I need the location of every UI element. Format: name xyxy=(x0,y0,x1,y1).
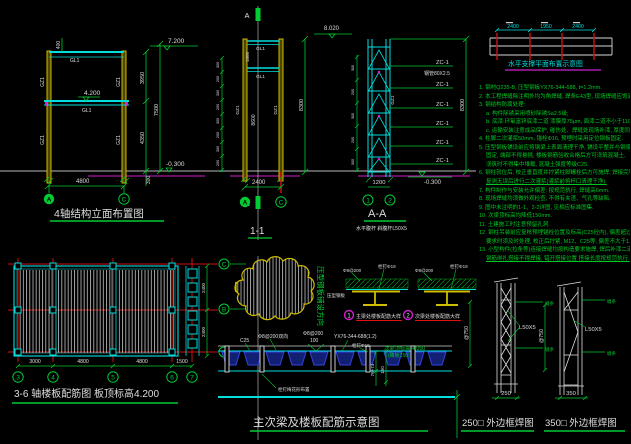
zc-label: ZC-1 xyxy=(436,82,449,88)
concrete-label: C25 xyxy=(240,338,249,344)
dim-3950: 3950 xyxy=(140,72,146,84)
mesh-label: Φ8@200双向 xyxy=(258,333,288,340)
axis-bubble-c-label: C xyxy=(122,197,127,204)
composite-deck-section: C25 Φ8@200双向 Φ8@200 100 YX76-344-688(1.2… xyxy=(218,331,455,397)
tick-dim: 200 xyxy=(216,76,220,82)
tick-dim: 200 xyxy=(216,132,220,138)
negative-rebar-label: Φ8@200 xyxy=(303,331,323,337)
tick-dim: 200 xyxy=(216,160,220,166)
row-bubble-b-label: B xyxy=(222,307,226,314)
note-line: 浇筑时不得集中堆载, 混凝土强度等级C25. xyxy=(479,161,630,170)
elevation-axis4: GL1 GL1 GZ1 GZ1 GZ1 GZ1 4.200 3950 4350 … xyxy=(40,38,198,221)
column-label: GZ1 xyxy=(273,105,279,115)
zc-label: ZC-1 xyxy=(436,102,449,108)
axis-bubble-1-label: 1 xyxy=(366,198,370,205)
detail-250-title: 250□ 外边框焊图 xyxy=(462,417,534,429)
axis-bubble-label: 4 xyxy=(51,375,55,382)
tick-dim: 300 xyxy=(351,65,355,71)
dim-span2: 1950 xyxy=(540,24,552,30)
note-line: 9. 图中未注明的1-1、2-2详图, 见相应标准图集. xyxy=(479,204,630,213)
width-dim-250: 250 xyxy=(501,391,511,397)
tick-dim: 200 xyxy=(216,104,220,110)
detail-350-title: 350□ 外边框焊图 xyxy=(545,417,617,429)
column-right xyxy=(122,51,126,183)
detail-secondary-beam: Φ8@200 栓钉Φ19 2 次梁处楼板配筋大样 xyxy=(404,263,477,321)
zc-label: ZC-1 xyxy=(436,60,449,66)
angle-size-label: L50X5 xyxy=(585,327,602,333)
beam-label: GL1 xyxy=(82,108,92,114)
dim-bay2: 4800 xyxy=(77,359,89,365)
angle-size-label: L50X5 xyxy=(519,325,536,331)
stud-label: 栓钉Φ19 xyxy=(378,263,396,270)
note-line: 要求时须及时处理, 校正后拧紧, M12、C25等, 偏差不大于1.0mm. xyxy=(479,238,630,247)
column-label: GZ1 xyxy=(40,77,46,87)
beam-label: GL1 xyxy=(70,58,80,64)
tick-dim: 300 xyxy=(351,113,355,119)
level-m0300: -0.300 xyxy=(424,180,442,186)
section-a-a: 300 200 300 200 300 GZ1 ZC-1 ZC-1 ZC-1 xyxy=(351,36,469,232)
detail-2-title: 次梁处楼板配筋大样 xyxy=(415,313,460,320)
deck-section-area: C B A 压型钢板铺设方向 Φ8@200 栓钉Φ19 压型钢板 1 主梁处楼板… xyxy=(218,256,476,440)
rebar-label: Φ8@200 xyxy=(415,268,434,273)
column-label: GZ1 xyxy=(116,77,122,87)
axis-bubble-2-label: 2 xyxy=(388,198,392,205)
note-line: c. 运输安装注意成品保护, 碰伤处、焊缝处现场补漆, 厚度同上; xyxy=(479,127,630,136)
detail-1-title: 主梁处楼板配筋大样 xyxy=(356,313,401,320)
beam-label: GL1 xyxy=(256,74,265,80)
note-line: 3. 钢结构防腐处理: xyxy=(479,101,630,110)
column-label: GZ1 xyxy=(116,135,122,145)
deck-direction-cloud xyxy=(235,257,314,320)
column-label: GZ1 xyxy=(235,105,241,115)
dim-7500: 7500 xyxy=(154,104,160,116)
section-title: A-A xyxy=(368,208,387,220)
beam-label: GL1 xyxy=(256,46,265,52)
deck-section-title: 主次梁及楼板配筋示意图 xyxy=(253,415,380,429)
dim-400: 400 xyxy=(56,41,62,50)
dim-8600: 8600 xyxy=(251,114,257,125)
tick-dim: 300 xyxy=(351,159,355,165)
tick-dim: 200 xyxy=(351,137,355,143)
stud-label: 栓钉Φ19 xyxy=(352,342,370,349)
section-marker-top: A xyxy=(244,11,249,20)
axis-bubble-label: 7 xyxy=(190,375,194,382)
note-line: 固定, 端部不得悬挑, 楼板钢筋验收合格后方可浇筑混凝土, xyxy=(479,152,630,161)
dim-deck-depth: 76+74 xyxy=(370,363,375,376)
dim-right1: 2400 xyxy=(201,282,206,293)
level-4200: 4.200 xyxy=(84,90,101,97)
bracing-plan-title: 水平支撑平面布置示意图 xyxy=(508,59,583,68)
pitch-dim: @750 xyxy=(539,329,545,343)
dim-4350: 4350 xyxy=(140,132,146,144)
axis-bubble-a-label: A xyxy=(47,197,52,204)
section-subtitle: 水平腹杆 斜腹杆L50X5 xyxy=(356,225,407,232)
zc-label: ZC-1 xyxy=(436,140,449,146)
note-line: 钢筋绑扎搭接不得焊接, 错开搭接位置 搭接长度按规范执行. xyxy=(479,255,630,264)
note-line: 12. 钢柱吊装前应复核预埋锚栓位置及标高(C25砼内), 偏差超过规范 xyxy=(479,229,630,238)
column-label: GZ1 xyxy=(390,95,396,105)
lacing-tag: 缀条 xyxy=(545,346,554,353)
row-bubble-c-label: C xyxy=(222,262,227,269)
stud-layout-note: 栓钉梅花形布置 xyxy=(278,386,310,393)
note-line: 13. 小型构件(拉条等)连接焊缝均按构造要求施焊, 焊后补漆二道, xyxy=(479,246,630,255)
dim-bay3: 4800 xyxy=(136,359,148,365)
deck-label: 压型钢板 xyxy=(327,292,345,299)
note-line: 10. 次梁顶标高均降低150mm. xyxy=(479,212,630,221)
note-line: 复测无误后进行二次灌浆(灌浆前将杯口清理干净). xyxy=(479,178,630,187)
dim-8300: 8300 xyxy=(460,99,466,111)
cad-drawing-canvas[interactable]: GL1 GL1 GZ1 GZ1 GZ1 GZ1 4.200 3950 4350 … xyxy=(0,0,631,444)
dim-right2: 2400 xyxy=(201,326,206,337)
dim-8300: 8300 xyxy=(299,99,305,111)
slab-plan-title: 3-6 轴楼板配筋图 板顶标高4.200 xyxy=(14,387,159,400)
detail-main-beam: Φ8@200 栓钉Φ19 压型钢板 1 主梁处楼板配筋大样 xyxy=(327,263,408,321)
pipe-label: 钢管80X2.5 xyxy=(424,70,450,77)
note-line: 8. 现场焊缝均须做外观检查, 不得有夹渣、气孔等缺陷. xyxy=(479,195,630,204)
lacing-tag: 缀条 xyxy=(607,350,616,357)
tick-dim: 300 xyxy=(216,62,220,68)
beam-top-level: 次梁顶标高 4.050 xyxy=(384,344,425,352)
dim-span3: 2400 xyxy=(572,24,584,30)
note-line: a. 构件除锈采用喷砂除锈Sa2.5级; xyxy=(479,110,630,119)
stud-label: 栓钉Φ19 xyxy=(450,263,468,270)
zc-label: ZC-1 xyxy=(436,121,449,127)
dim-4800: 4800 xyxy=(76,179,90,185)
note-line: 2. 本工程焊缝除注明外均为角焊缝, 焊条E43型, 现场焊缝应饱满. xyxy=(479,93,630,102)
dim-2400: 2400 xyxy=(252,180,266,186)
level-7200: 7.200 xyxy=(168,38,185,45)
elevation-title: 4轴结构立面布置图 xyxy=(54,207,144,220)
tick-dim: 300 xyxy=(216,90,220,96)
dim-slab-total: 150 xyxy=(380,366,385,374)
note-line: 7. 构件制作与安装允许偏差: 按规范执行, 焊缝高6mm. xyxy=(479,187,630,196)
section-title: 1-1 xyxy=(250,226,265,237)
frame-detail-250: 缀条 缀条 L50X5 @750 250 250□ 外边框焊图 xyxy=(461,278,554,431)
zc-label: ZC-1 xyxy=(436,158,449,164)
deck-sheet-label: YX76-344-688(1.2) xyxy=(334,334,377,340)
general-notes: 1. 钢材Q235-B, 压型钢板YX76-344-688, t=1.2mm.2… xyxy=(479,84,630,263)
lacing-tag: 缀条 xyxy=(607,298,616,305)
level-8020: 8.020 xyxy=(324,26,340,32)
zc-leaders xyxy=(390,66,453,164)
dim-300: 300 xyxy=(146,176,152,185)
tick-dim: 300 xyxy=(216,118,220,124)
axis-bubble-label: 6 xyxy=(170,375,174,382)
axis-bubble-c-label: C xyxy=(279,200,284,207)
axis-bubble-label: 5 xyxy=(111,375,115,382)
column-label: GZ1 xyxy=(40,135,46,145)
bracing-plan: 2400 1950 2400 水平支撑平面布置示意图 xyxy=(490,22,612,70)
column-right xyxy=(279,39,283,181)
rebar-label: Φ8@200 xyxy=(343,268,362,273)
dim-bay1: 3000 xyxy=(29,359,41,365)
note-line: 5. 压型钢板铺设前应将钢梁上表面清理干净, 铺设平整并与钢梁点焊 xyxy=(479,144,630,153)
note-line: 4. 柱脚二次灌浆50mm, 锚栓Φ16, 预埋时采用定位钢板固定. xyxy=(479,135,630,144)
dim-1800: 1800 xyxy=(245,51,250,62)
axis-bubble-label: 3 xyxy=(16,375,20,382)
slab-plan: 2400 2400 3000 4800 4800 1500 3 4 5 6 7 … xyxy=(8,258,218,403)
dim-1200: 1200 xyxy=(373,180,386,186)
negative-rebar-spacing: 100 xyxy=(310,338,319,344)
tick-dim: 200 xyxy=(351,89,355,95)
note-line: 6. 钢柱就位后, 校正垂直度并拧紧柱脚螺栓后方可施焊, 焊接完毕 xyxy=(479,169,630,178)
ground-line xyxy=(0,171,476,176)
width-dim-350: 350 xyxy=(566,391,576,397)
level-m0300: -0.300 xyxy=(166,161,185,168)
drop-note: (降板150) xyxy=(388,352,410,359)
dim-bay4: 1500 xyxy=(176,359,188,365)
note-line: 1. 钢材Q235-B, 压型钢板YX76-344-688, t=1.2mm. xyxy=(479,84,630,93)
tick-dim: 300 xyxy=(216,146,220,152)
deck-direction-label: 压型钢板铺设方向 xyxy=(316,266,326,326)
section-1-1: A A GL1 GL1 1800 8600 GZ1 GZ1 300 200 30… xyxy=(216,6,352,240)
dim-span1: 2400 xyxy=(507,24,519,30)
axis-bubble-a-label: A xyxy=(243,200,248,207)
pitch-dim: @750 xyxy=(464,326,470,340)
note-line: 11. 土建施工时注意预留孔洞. xyxy=(479,221,630,230)
note-line: b. 底漆:环氧富锌底漆二道 漆膜厚75μm, 面漆二道不小于110μm; xyxy=(479,118,630,127)
column-left xyxy=(47,51,51,183)
